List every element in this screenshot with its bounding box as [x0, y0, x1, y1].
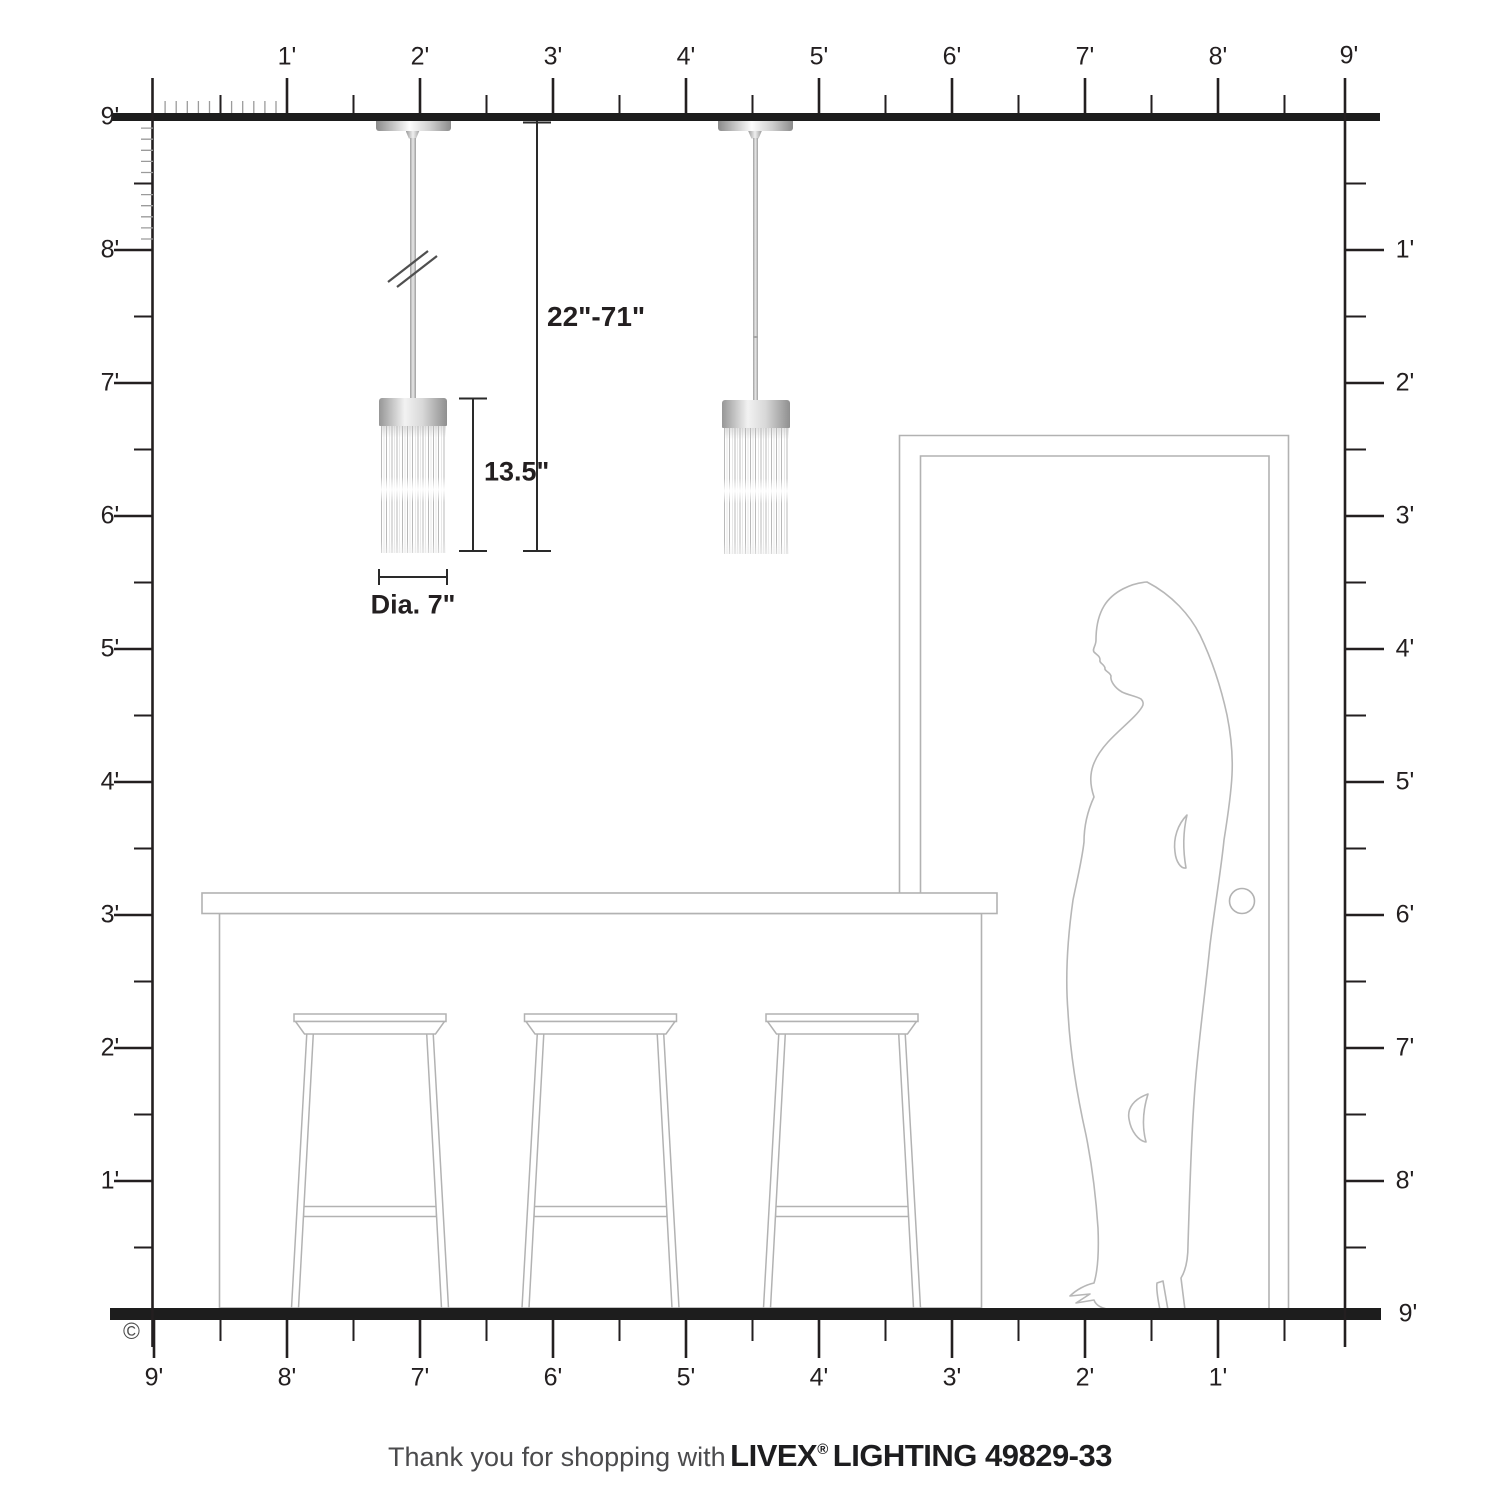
stool-stretcher [304, 1207, 437, 1217]
left-ruler-label: 1' [101, 1169, 120, 1194]
shade-height-dim-line [459, 399, 487, 553]
pendant-canopy [718, 121, 793, 131]
ceiling-line [112, 113, 1380, 121]
top-ruler-label: 5' [810, 45, 829, 70]
bottom-ruler-label: 2' [1076, 1366, 1095, 1391]
right-ruler-half-ticks [1346, 184, 1366, 1248]
stool-stretcher [534, 1207, 667, 1217]
right-ruler-floor-label: 9' [1399, 1302, 1418, 1327]
right-ruler-label: 8' [1396, 1169, 1415, 1194]
woman-outline [1067, 582, 1232, 1310]
stool-apron [768, 1022, 917, 1035]
floor-line [110, 1308, 1381, 1320]
left-ruler-label: 6' [101, 504, 120, 529]
island-body [220, 914, 982, 1309]
pendant-cap [722, 400, 790, 428]
brand-name: LIVEX [730, 1438, 817, 1473]
top-ruler-label: 9' [1340, 44, 1359, 69]
stool-seat [525, 1014, 677, 1022]
pendant-canopy [376, 121, 451, 131]
left-ruler-label: 3' [101, 903, 120, 928]
shade-diameter-dim-line [379, 569, 447, 585]
scale-diagram: 22"-71" 13.5" Dia. 7" 1' 2' 3' 4' 5' 6' … [0, 0, 1500, 1500]
left-ruler-label: 5' [101, 637, 120, 662]
stool-seat [294, 1014, 446, 1022]
bottom-ruler-label: 9' [145, 1366, 164, 1391]
copyright-symbol: © [123, 1320, 140, 1343]
bottom-ruler-label: 4' [810, 1366, 829, 1391]
shade-diameter-label: Dia. 7" [371, 592, 456, 619]
stool-seat [766, 1014, 918, 1022]
drop-range-dim-line [523, 121, 551, 552]
top-ruler-label: 2' [411, 45, 430, 70]
diagram-lineart [0, 0, 1500, 1500]
shade-height-label: 13.5" [484, 459, 549, 486]
island-countertop [202, 893, 997, 914]
pendant-glass-rod-shade [724, 428, 789, 555]
bottom-ruler-label: 8' [278, 1366, 297, 1391]
top-ruler-label: 4' [677, 45, 696, 70]
downrod-joint [753, 336, 759, 338]
right-ruler-label: 5' [1396, 770, 1415, 795]
stool-apron [526, 1022, 675, 1035]
bottom-ruler-foot-ticks [154, 1320, 1218, 1358]
left-ruler-label: 7' [101, 371, 120, 396]
top-ruler-label: 7' [1076, 45, 1095, 70]
left-ruler-label: 2' [101, 1036, 120, 1061]
top-ruler-label: 1' [278, 45, 297, 70]
product-number: LIGHTING 49829-33 [833, 1438, 1112, 1473]
bottom-ruler-half-ticks [221, 1320, 1285, 1341]
pendant-cap [379, 398, 447, 426]
stool-stretcher [776, 1207, 909, 1217]
stool-apron [296, 1022, 445, 1035]
rod-break-symbol [384, 240, 442, 292]
right-ruler-label: 4' [1396, 637, 1415, 662]
left-ruler-label: 9' [101, 105, 120, 130]
door-knob [1230, 889, 1255, 914]
bottom-ruler-label: 6' [544, 1366, 563, 1391]
left-ruler-half-ticks [134, 184, 152, 1248]
drop-range-label: 22"-71" [547, 303, 645, 331]
left-ruler-label: 4' [101, 770, 120, 795]
footer-tagline: Thank you for shopping with LIVEX® LIGHT… [0, 1438, 1500, 1474]
kitchen-island [202, 893, 997, 1308]
pendant-glass-rod-shade [381, 426, 446, 553]
top-ruler-label: 8' [1209, 45, 1228, 70]
bottom-ruler-label: 7' [411, 1366, 430, 1391]
tagline-prefix: Thank you for shopping with [388, 1442, 726, 1472]
right-ruler-label: 1' [1396, 238, 1415, 263]
woman-silhouette [1067, 582, 1232, 1310]
left-ruler-label: 8' [101, 238, 120, 263]
right-ruler-label: 2' [1396, 371, 1415, 396]
right-ruler-label: 7' [1396, 1036, 1415, 1061]
registered-trademark-symbol: ® [817, 1441, 828, 1458]
top-ruler-half-ticks [221, 95, 1285, 113]
right-ruler-label: 3' [1396, 504, 1415, 529]
top-ruler-label: 3' [544, 45, 563, 70]
pendant-downrod [753, 138, 759, 400]
top-ruler-label: 6' [943, 45, 962, 70]
right-ruler-label: 6' [1396, 903, 1415, 928]
bottom-ruler-label: 3' [943, 1366, 962, 1391]
bottom-ruler-label: 5' [677, 1366, 696, 1391]
bottom-ruler-label: 1' [1209, 1366, 1228, 1391]
